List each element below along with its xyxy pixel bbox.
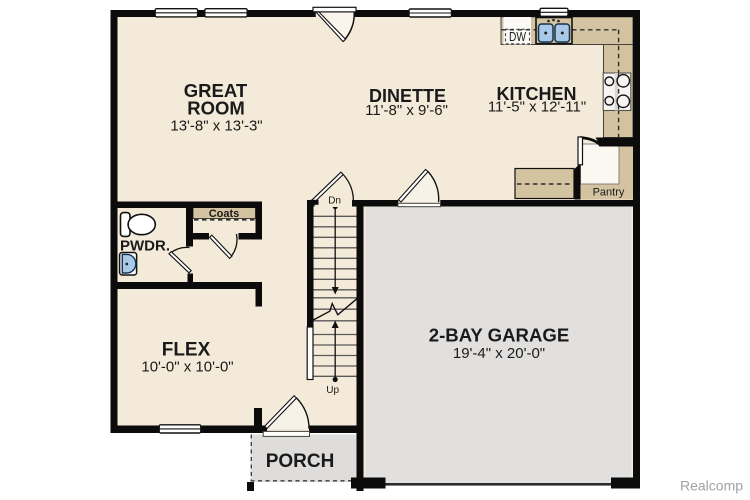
svg-text:19'-4" x 20'-0": 19'-4" x 20'-0" [453, 345, 545, 362]
svg-text:PWDR.: PWDR. [120, 237, 170, 254]
svg-text:Dn: Dn [328, 196, 341, 207]
svg-text:11'-8" x 9'-6": 11'-8" x 9'-6" [365, 102, 448, 119]
svg-text:Pantry: Pantry [593, 187, 625, 199]
svg-text:10'-0" x 10'-0": 10'-0" x 10'-0" [141, 359, 233, 376]
svg-text:Up: Up [326, 385, 339, 396]
svg-text:DW: DW [509, 29, 527, 44]
svg-text:11'-5" x 12'-11": 11'-5" x 12'-11" [488, 99, 586, 116]
svg-text:13'-8" x 13'-3": 13'-8" x 13'-3" [170, 118, 262, 135]
svg-text:Realcomp: Realcomp [680, 478, 743, 494]
svg-text:FLEX: FLEX [162, 340, 211, 361]
svg-text:Coats: Coats [209, 208, 240, 220]
svg-text:PORCH: PORCH [266, 451, 335, 472]
svg-text:2-BAY GARAGE: 2-BAY GARAGE [429, 325, 570, 346]
svg-text:ROOM: ROOM [187, 98, 245, 119]
